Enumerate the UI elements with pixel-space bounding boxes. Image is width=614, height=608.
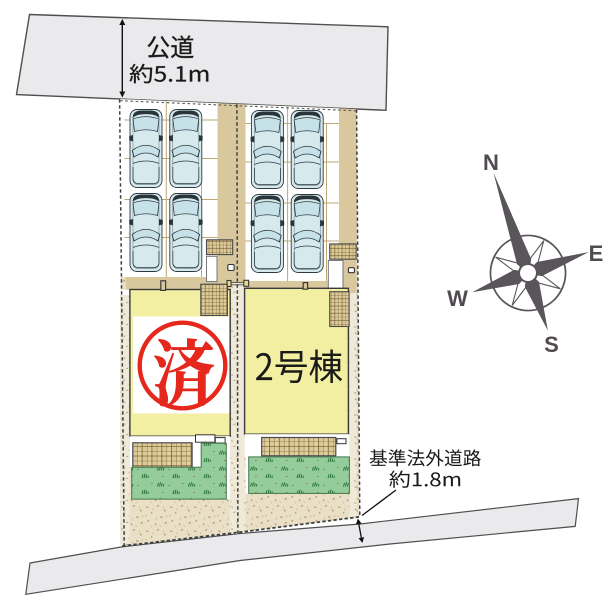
svg-text:W: W [447,286,468,311]
svg-text:S: S [544,332,559,357]
svg-text:N: N [483,150,499,175]
svg-text:E: E [589,241,604,266]
